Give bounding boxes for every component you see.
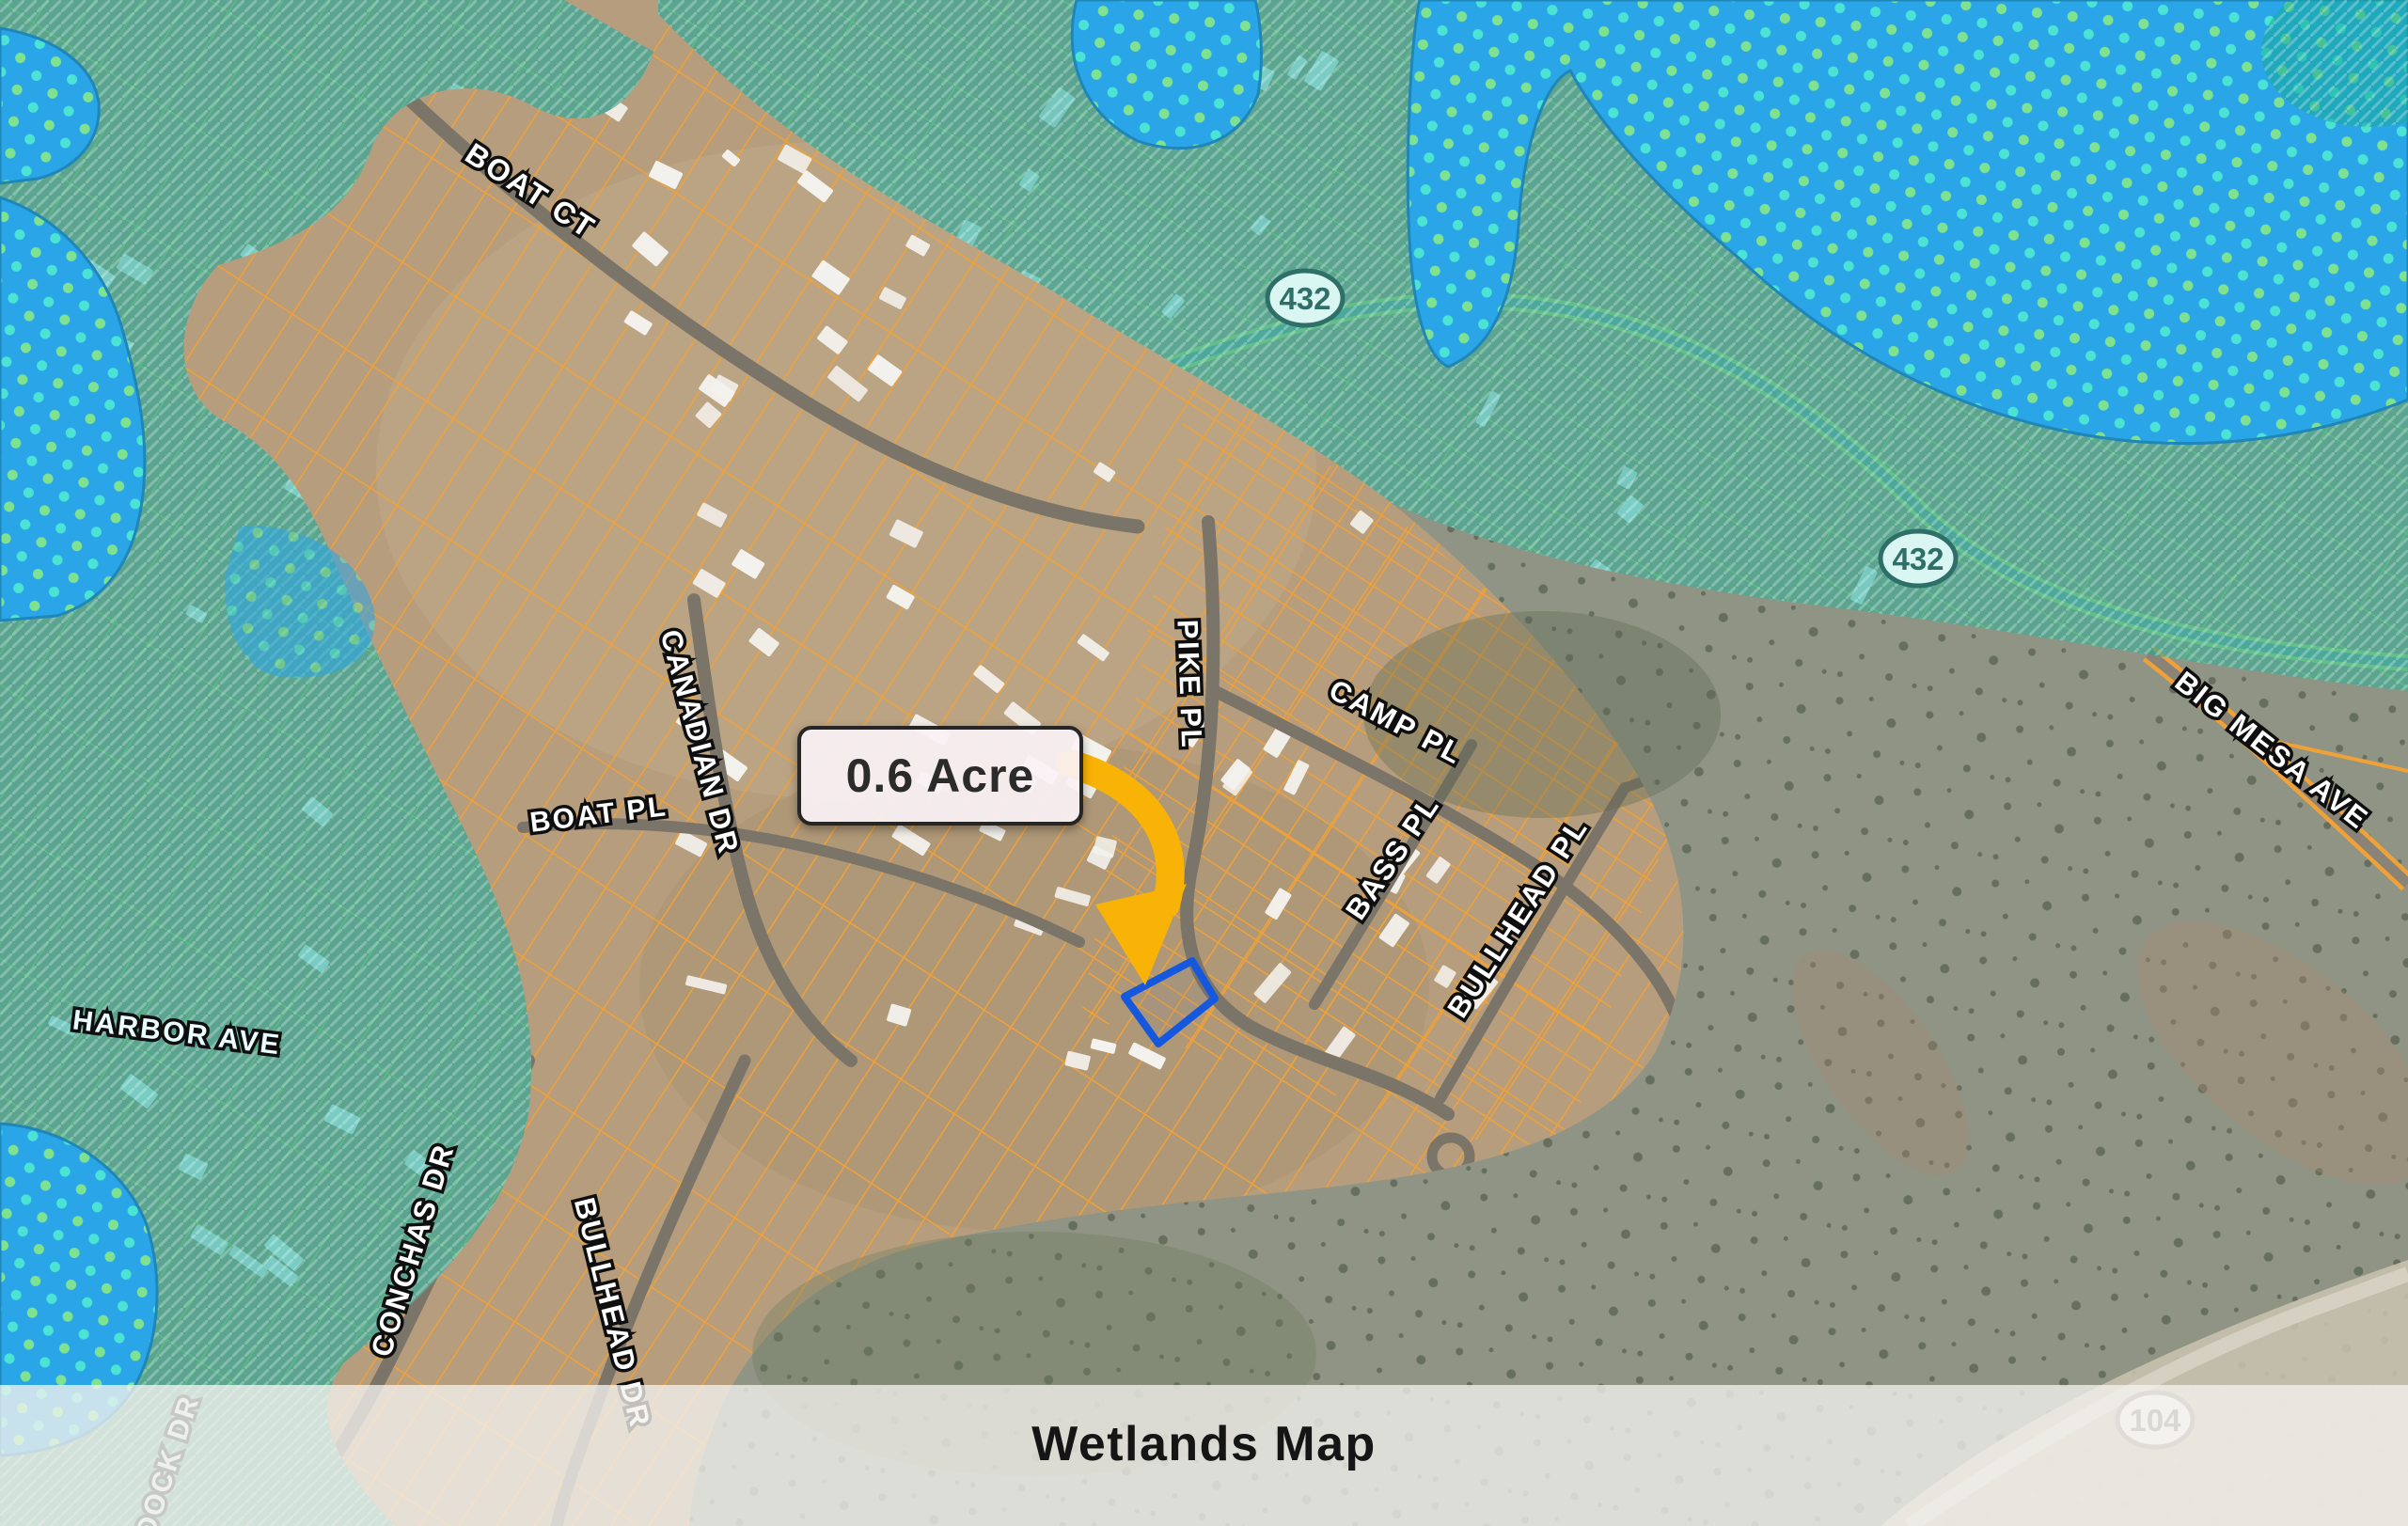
svg-text:432: 432 [1279,281,1330,316]
svg-text:432: 432 [1892,542,1944,576]
wetlands-map-stage: BOAT CTBOAT PLCANADIAN DRPIKE PLCAMP PLB… [0,0,2408,1526]
route-shield-432: 432 [1267,271,1343,325]
acreage-callout: 0.6 Acre [797,726,1083,826]
street-label-pike-pl: PIKE PL [1171,619,1208,749]
caption-bar: Wetlands Map [0,1385,2408,1526]
route-shield-432: 432 [1881,531,1956,586]
acreage-callout-text: 0.6 Acre [846,748,1035,803]
map-canvas: BOAT CTBOAT PLCANADIAN DRPIKE PLCAMP PLB… [0,0,2408,1526]
map-title: Wetlands Map [1031,1416,1377,1472]
